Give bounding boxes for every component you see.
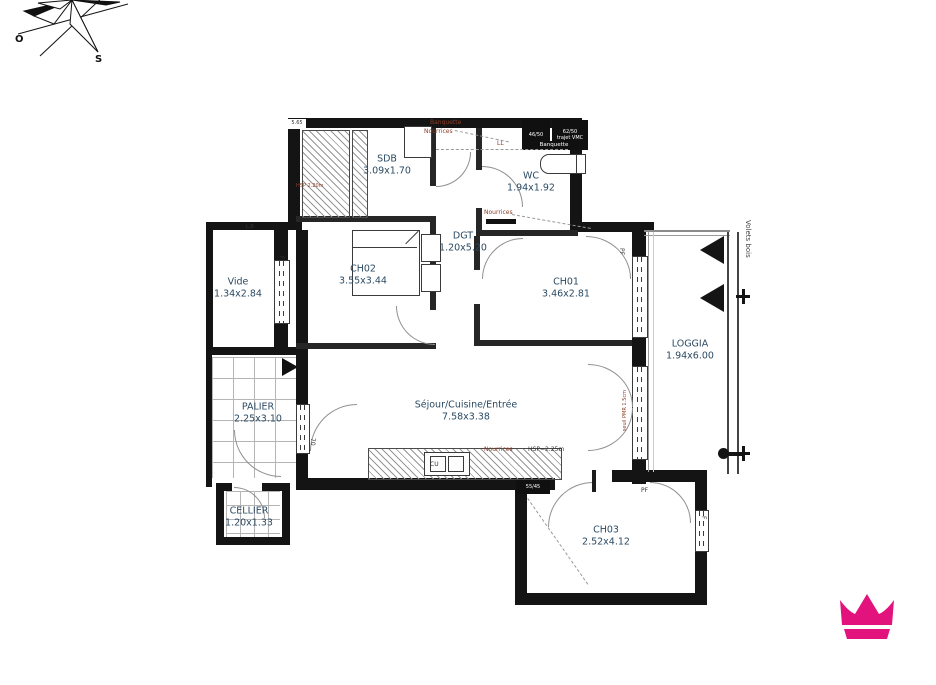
loggia-floor-line xyxy=(653,232,654,472)
door-leaf xyxy=(592,470,596,492)
room-label-ch02: CH02 3.55x3.44 xyxy=(339,264,387,289)
lb-note: L.B xyxy=(246,224,254,230)
shaft-size-note: 5.65 xyxy=(288,119,306,129)
nourrices-strip xyxy=(486,219,516,224)
room-label-ch03: CH03 2.52x4.12 xyxy=(582,525,630,550)
wall xyxy=(612,470,707,482)
room-name: CH02 xyxy=(339,264,387,276)
compass-south-label: S xyxy=(95,54,102,64)
nightstand xyxy=(421,264,441,292)
room-dims: 7.58x3.38 xyxy=(415,412,518,424)
room-label-palier: PALIER 2.25x3.10 xyxy=(234,402,282,427)
room-dims: 1.94x6.00 xyxy=(666,351,714,363)
window-pf-sejour xyxy=(632,366,648,460)
room-dims: 1.20x5.20 xyxy=(439,243,487,255)
toilet-tank xyxy=(576,154,586,174)
room-name: WC xyxy=(507,171,555,183)
room-name: CH01 xyxy=(542,277,590,289)
volets-bois-label: Volets bois xyxy=(744,220,752,258)
room-name: Vide xyxy=(214,277,262,289)
door-width-label: 70 xyxy=(309,438,316,446)
guide-line xyxy=(436,149,568,150)
wall xyxy=(296,230,308,347)
room-label-ch01: CH01 3.46x2.81 xyxy=(542,277,590,302)
room-dims: 3.55x3.44 xyxy=(339,276,387,288)
wall xyxy=(632,458,646,484)
partition xyxy=(478,230,578,236)
kitchen-unit-label: CU xyxy=(430,461,439,468)
room-name: DGT xyxy=(439,231,487,243)
floor-plan: O S xyxy=(0,0,936,685)
room-label-cellier: CELLIER 1.20x1.33 xyxy=(225,506,273,531)
f-label: F xyxy=(700,516,707,519)
room-label-dgt: DGT 1.20x5.20 xyxy=(439,231,487,256)
door-arc-ch03-pf xyxy=(650,482,691,523)
ll-note: LL xyxy=(497,140,504,147)
wall xyxy=(206,222,213,355)
hsp-note: HSP=2.25m xyxy=(528,446,564,453)
entry-door-threshold xyxy=(296,404,310,454)
wall xyxy=(288,118,300,222)
room-dims: 3.09x1.70 xyxy=(363,166,411,178)
bed-pillow-line xyxy=(353,247,417,248)
room-name: CELLIER xyxy=(225,506,273,518)
window-pf-ch01 xyxy=(632,256,648,338)
wall xyxy=(274,222,288,260)
crown-logo-icon xyxy=(838,592,896,642)
window xyxy=(274,260,290,324)
wall xyxy=(632,336,646,366)
wall xyxy=(695,482,707,510)
compass-west-label: O xyxy=(15,34,24,45)
kitchen-sink-bowl xyxy=(448,456,464,472)
room-dims: 1.34x2.84 xyxy=(214,289,262,301)
door-arc-ch01-pf xyxy=(586,236,631,279)
duct-size-label: 46/50 xyxy=(529,132,543,138)
partition xyxy=(296,343,436,349)
room-label-wc: WC 1.94x1.92 xyxy=(507,171,555,196)
nourrices-note: Nourrices xyxy=(484,209,513,216)
f-label: F xyxy=(278,256,285,259)
duct-size-label: 55/45 xyxy=(526,484,540,490)
wall xyxy=(515,593,707,605)
room-name: LOGGIA xyxy=(666,339,714,351)
wall xyxy=(216,537,290,545)
room-label-sejour: Séjour/Cuisine/Entrée 7.58x3.38 xyxy=(415,400,518,425)
wall xyxy=(515,478,527,597)
wall xyxy=(216,483,224,545)
door-arc-entry xyxy=(310,404,357,451)
rail-post xyxy=(742,289,745,304)
pf-label: PF xyxy=(641,487,648,494)
room-label-sdb: SDB 3.09x1.70 xyxy=(363,154,411,179)
vmc-duct: 55/45 xyxy=(516,480,550,494)
room-dims: 1.94x1.92 xyxy=(507,183,555,195)
wall xyxy=(206,347,306,355)
duct-shaft xyxy=(302,130,350,218)
door-arc-ch01 xyxy=(482,238,523,279)
room-dims: 2.25x3.10 xyxy=(234,414,282,426)
door-arc-sdb xyxy=(436,152,471,187)
pf-label: PF xyxy=(618,248,625,255)
nourrices-note: Nourrices xyxy=(424,128,453,135)
shutter-icon xyxy=(700,284,724,312)
room-dims: 2.52x4.12 xyxy=(582,537,630,549)
loggia-rail xyxy=(727,232,729,474)
room-dims: 3.46x2.81 xyxy=(542,289,590,301)
room-name: PALIER xyxy=(234,402,282,414)
entrance-arrow-icon xyxy=(282,358,298,376)
loggia-rail xyxy=(737,232,739,474)
room-label-loggia: LOGGIA 1.94x6.00 xyxy=(666,339,714,364)
banquette-note: Banquette xyxy=(430,119,461,126)
loggia-floor-line xyxy=(648,232,649,472)
room-name: Séjour/Cuisine/Entrée xyxy=(415,400,518,412)
wall xyxy=(632,222,646,256)
nourrices-note: Nourrices xyxy=(484,446,513,453)
rail-fitting xyxy=(728,452,744,456)
hsp-sdb-note: HSP 2.20m xyxy=(296,183,324,189)
loggia-top-rail xyxy=(644,230,730,232)
wall xyxy=(282,483,290,545)
partition xyxy=(474,340,632,346)
wall xyxy=(695,550,707,605)
room-label-vide: Vide 1.34x2.84 xyxy=(214,277,262,302)
shutter-icon xyxy=(700,236,724,264)
seuil-note: seuil PMR 1.5cm xyxy=(622,390,628,431)
nightstand xyxy=(421,234,441,262)
room-dims: 1.20x1.33 xyxy=(225,518,273,530)
room-name: SDB xyxy=(363,154,411,166)
door-arc-ch02 xyxy=(396,306,435,345)
room-name: CH03 xyxy=(582,525,630,537)
compass-rose-icon: O S xyxy=(10,0,130,64)
